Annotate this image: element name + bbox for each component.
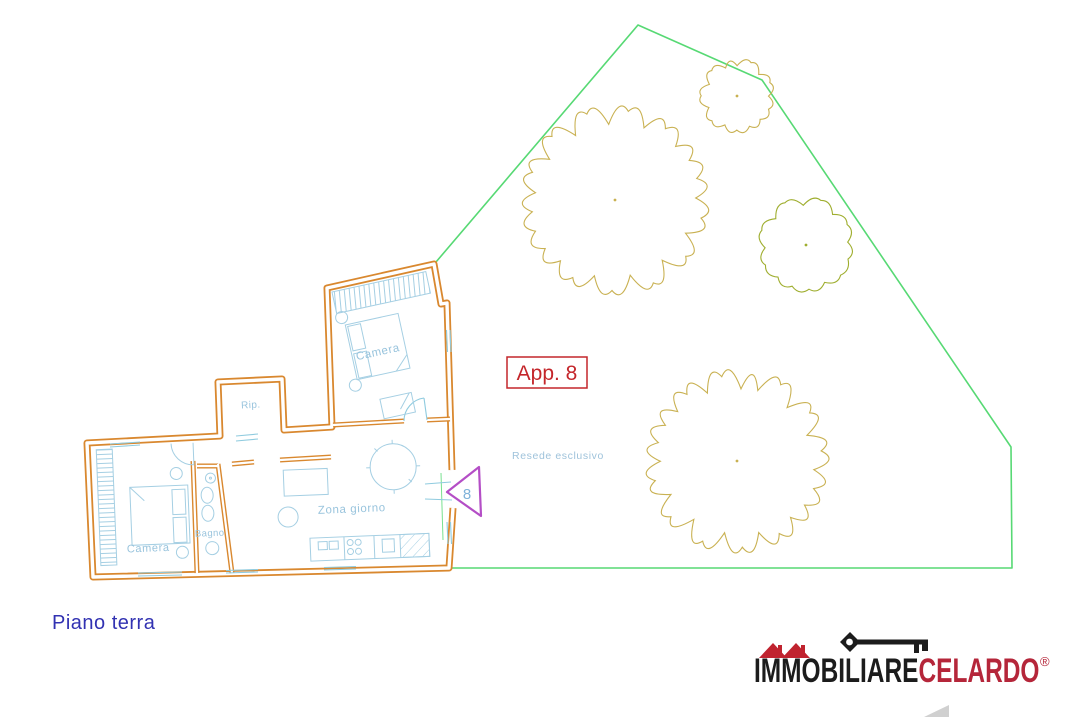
large-tree-top — [522, 106, 708, 295]
logo-part2: CELARDO — [918, 652, 1039, 690]
floorplan-drawing: Camera Camera Bagno — [0, 0, 1076, 720]
small-tree-top-right — [700, 60, 774, 133]
floor-label: Piano terra — [52, 612, 156, 634]
kitchen-counter — [310, 533, 430, 561]
logo-part1: IMMOBILIARE — [754, 652, 918, 690]
dining-table — [365, 439, 421, 495]
nightstand — [176, 546, 188, 558]
garden-boundary — [436, 25, 1012, 568]
room-label-rip: Rip. — [241, 400, 261, 412]
pillow — [172, 489, 186, 515]
green-tree-right — [759, 198, 852, 292]
room-label-zona-giorno: Zona giorno — [318, 502, 386, 517]
door-swing — [171, 443, 194, 466]
apartment-badge-label: App. 8 — [517, 362, 578, 385]
room-camera-upper: Camera — [329, 272, 454, 425]
registered-mark: ® — [1040, 654, 1050, 669]
agency-logo: IMMOBILIARECELARDO ® — [754, 632, 1050, 690]
garden-trees — [522, 60, 852, 553]
bed-fold-line — [130, 487, 145, 502]
bed — [130, 485, 190, 545]
entrance-number: 8 — [463, 486, 471, 503]
room-label-camera-lower: Camera — [127, 542, 170, 556]
room-label-bagno: Bagno — [195, 528, 225, 540]
logo-wordmark: IMMOBILIARECELARDO — [754, 652, 1039, 690]
sofa — [283, 468, 328, 496]
nightstand — [170, 467, 182, 479]
north-arrow-remnant — [924, 705, 949, 717]
apartment-badge: App. 8 — [507, 357, 587, 388]
lower-wing: Camera Bagno Zo — [96, 433, 430, 569]
key-icon — [840, 632, 928, 653]
garden-label: Resede esclusivo — [512, 450, 604, 462]
large-tree-bottom — [646, 370, 829, 553]
room-label-camera-upper: Camera — [355, 342, 401, 363]
bathroom-fixture — [206, 541, 220, 555]
bathroom-sink — [205, 473, 215, 483]
nightstand — [348, 378, 362, 392]
bidet — [202, 505, 215, 521]
bathroom-sink-dot — [209, 477, 211, 479]
pillow — [173, 517, 187, 543]
toilet — [201, 487, 214, 503]
garden-boundary-line — [436, 25, 1012, 568]
floorplan-page: Camera Camera Bagno — [0, 0, 1076, 720]
svg-text:IMMOBILIARECELARDO: IMMOBILIARECELARDO — [754, 652, 1039, 690]
wardrobe-hatch — [96, 449, 117, 566]
coffee-table — [278, 507, 299, 528]
